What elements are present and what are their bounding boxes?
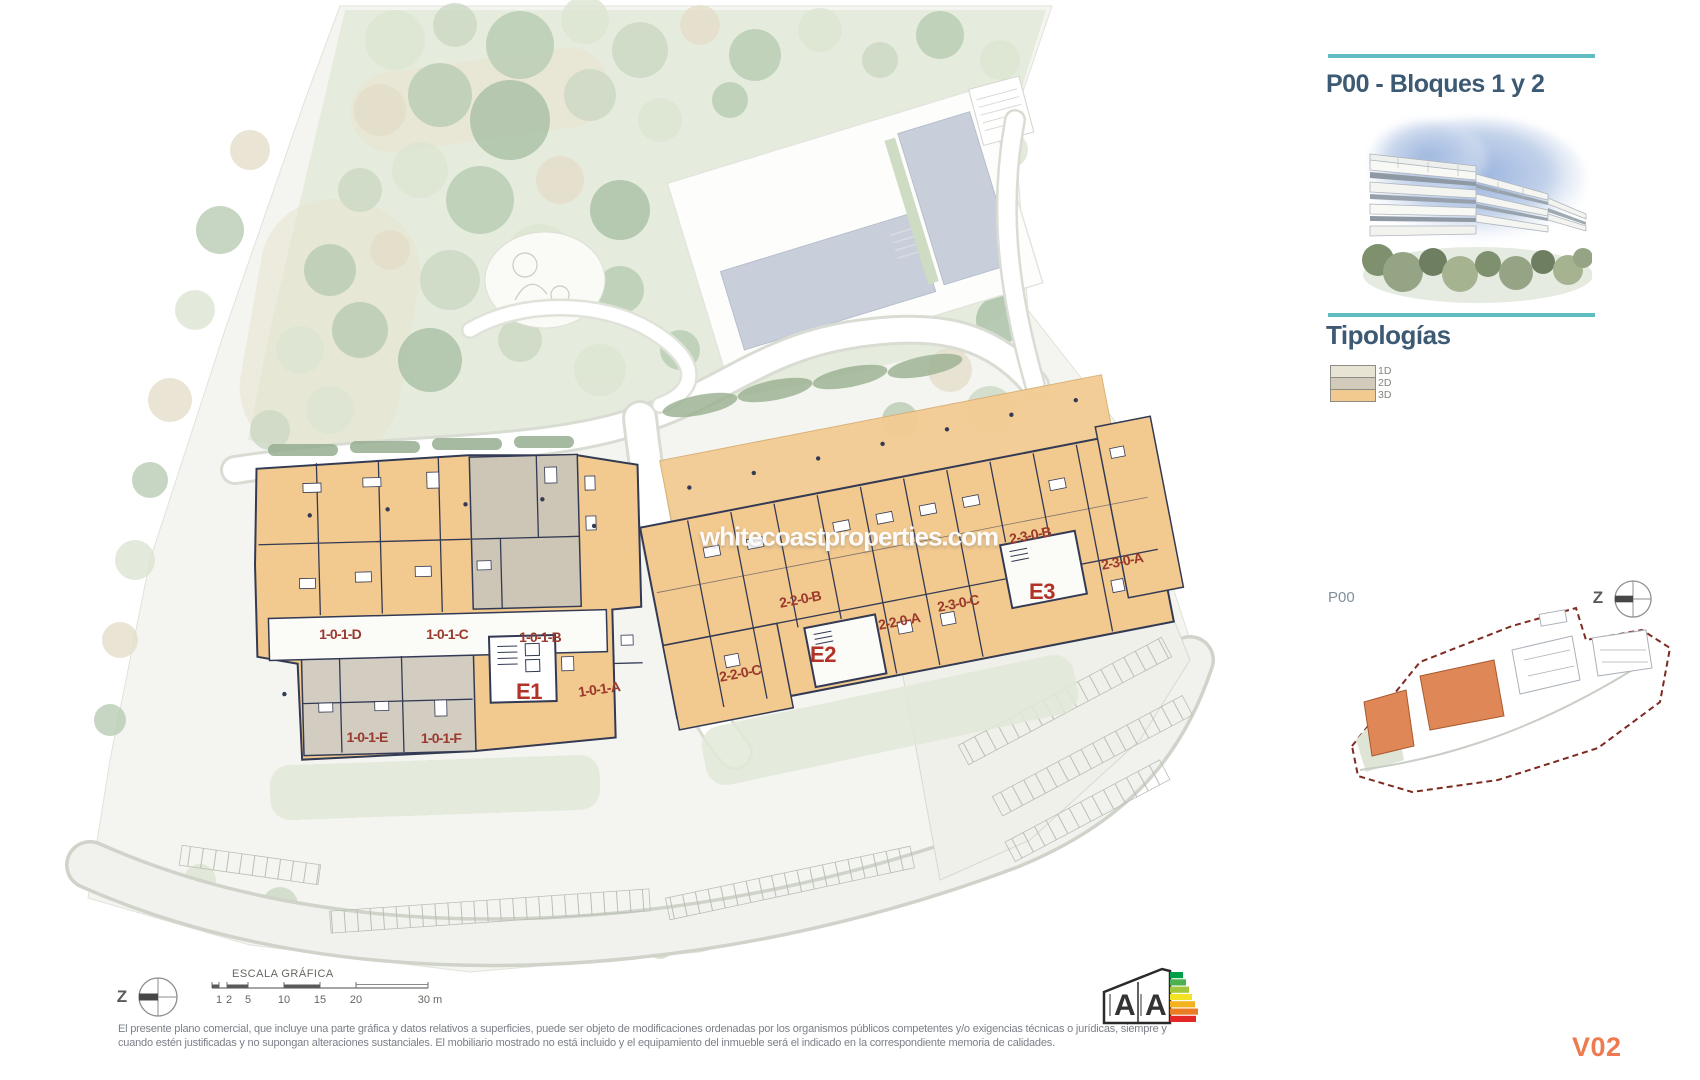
minimap-compass-icon	[1615, 581, 1651, 617]
disclaimer: El presente plano comercial, que incluye…	[118, 1022, 1198, 1050]
typologies-heading: Tipologías	[1326, 320, 1451, 351]
unit-label-1-0-1-d: 1-0-1-D	[319, 626, 361, 642]
building-photo	[1358, 110, 1592, 312]
block-label-e1: E1	[516, 679, 542, 705]
building-foliage	[1362, 244, 1592, 303]
unit-label-1-0-1-f: 1-0-1-F	[421, 730, 461, 746]
accent-line-top	[1328, 54, 1595, 58]
minimap-compass-label: Z	[1593, 588, 1603, 608]
legend-row-3d: 3D	[1330, 389, 1391, 402]
energy-letter: A	[1145, 989, 1167, 1022]
version-label: V02	[1572, 1032, 1622, 1063]
unit-label-1-0-1-e: 1-0-1-E	[346, 729, 387, 745]
disclaimer-line-2: cuando estén justificadas y no supongan …	[118, 1036, 1198, 1050]
scale-tick: 1	[216, 994, 222, 1006]
disclaimer-line-1: El presente plano comercial, que incluye…	[118, 1022, 1198, 1036]
block-e1	[252, 451, 645, 761]
energy-letter: A	[1114, 989, 1136, 1022]
typologies-legend: 1D 2D 3D	[1330, 366, 1391, 402]
page-title: P00 - Bloques 1 y 2	[1326, 70, 1544, 99]
watermark: whitecoastproperties.com	[700, 522, 998, 553]
minimap-label: P00	[1328, 589, 1355, 606]
accent-line-bottom	[1328, 313, 1595, 317]
legend-swatch-3d	[1330, 389, 1376, 402]
block-label-e2: E2	[810, 642, 836, 668]
legend-label-3d: 3D	[1378, 389, 1391, 402]
page: whitecoastproperties.com 1-0-1-D 1-0-1-C…	[0, 0, 1700, 1080]
scale-tick: 2	[226, 994, 232, 1006]
scale-tick: 5	[245, 994, 251, 1006]
energy-scale-bars	[1170, 972, 1198, 1022]
scale-tick: 15	[314, 994, 326, 1006]
plan-compass-label: Z	[117, 987, 127, 1007]
scale-tick: 20	[350, 994, 362, 1006]
scale-bar	[212, 982, 428, 988]
scale-bar-title: ESCALA GRÁFICA	[232, 968, 334, 980]
compass-icon	[139, 978, 177, 1016]
minimap	[1352, 608, 1670, 792]
energy-rating-icon: A A	[1100, 962, 1200, 1028]
scale-tick: 10	[278, 994, 290, 1006]
unit-label-1-0-1-c: 1-0-1-C	[426, 626, 468, 642]
block-label-e3: E3	[1029, 579, 1055, 605]
scale-tick: 30 m	[418, 994, 442, 1006]
unit-label-1-0-1-b: 1-0-1-B	[519, 629, 561, 645]
